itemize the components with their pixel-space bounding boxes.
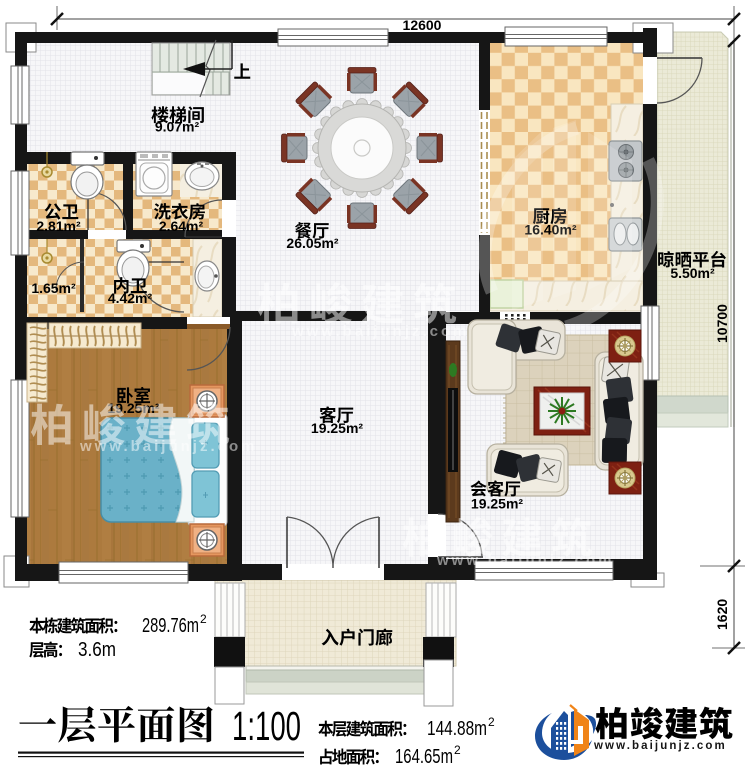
svg-text:12600: 12600 <box>403 17 442 33</box>
svg-text:2.64m²: 2.64m² <box>159 218 204 234</box>
svg-text:2: 2 <box>488 715 495 729</box>
svg-text:2: 2 <box>200 612 207 626</box>
svg-text:www.baijunjz.com: www.baijunjz.com <box>291 323 469 340</box>
svg-text:2: 2 <box>454 743 461 757</box>
svg-text:3.6m: 3.6m <box>78 639 116 661</box>
svg-text:26.05m²: 26.05m² <box>286 235 338 251</box>
svg-text:289.76m: 289.76m <box>142 615 199 637</box>
svg-text:www.baijunjz.com: www.baijunjz.com <box>79 438 257 455</box>
svg-text:19.25m²: 19.25m² <box>311 420 363 436</box>
svg-text:9.07m²: 9.07m² <box>155 119 200 135</box>
svg-text:5.50m²: 5.50m² <box>670 265 715 281</box>
svg-text:www.baijunjz.com: www.baijunjz.com <box>593 740 727 752</box>
svg-text:1.65m²: 1.65m² <box>31 280 76 296</box>
svg-text:4.42m²: 4.42m² <box>108 290 153 306</box>
svg-text:144.88m: 144.88m <box>427 718 487 740</box>
svg-text:www.baijunjz.com: www.baijunjz.com <box>436 552 614 569</box>
svg-text:164.65m: 164.65m <box>395 746 453 768</box>
svg-text:10700: 10700 <box>714 304 730 343</box>
svg-text:2.81m²: 2.81m² <box>36 218 81 234</box>
svg-text:1:100: 1:100 <box>232 703 301 749</box>
svg-text:19.25m²: 19.25m² <box>471 496 523 512</box>
svg-text:1620: 1620 <box>714 599 730 630</box>
